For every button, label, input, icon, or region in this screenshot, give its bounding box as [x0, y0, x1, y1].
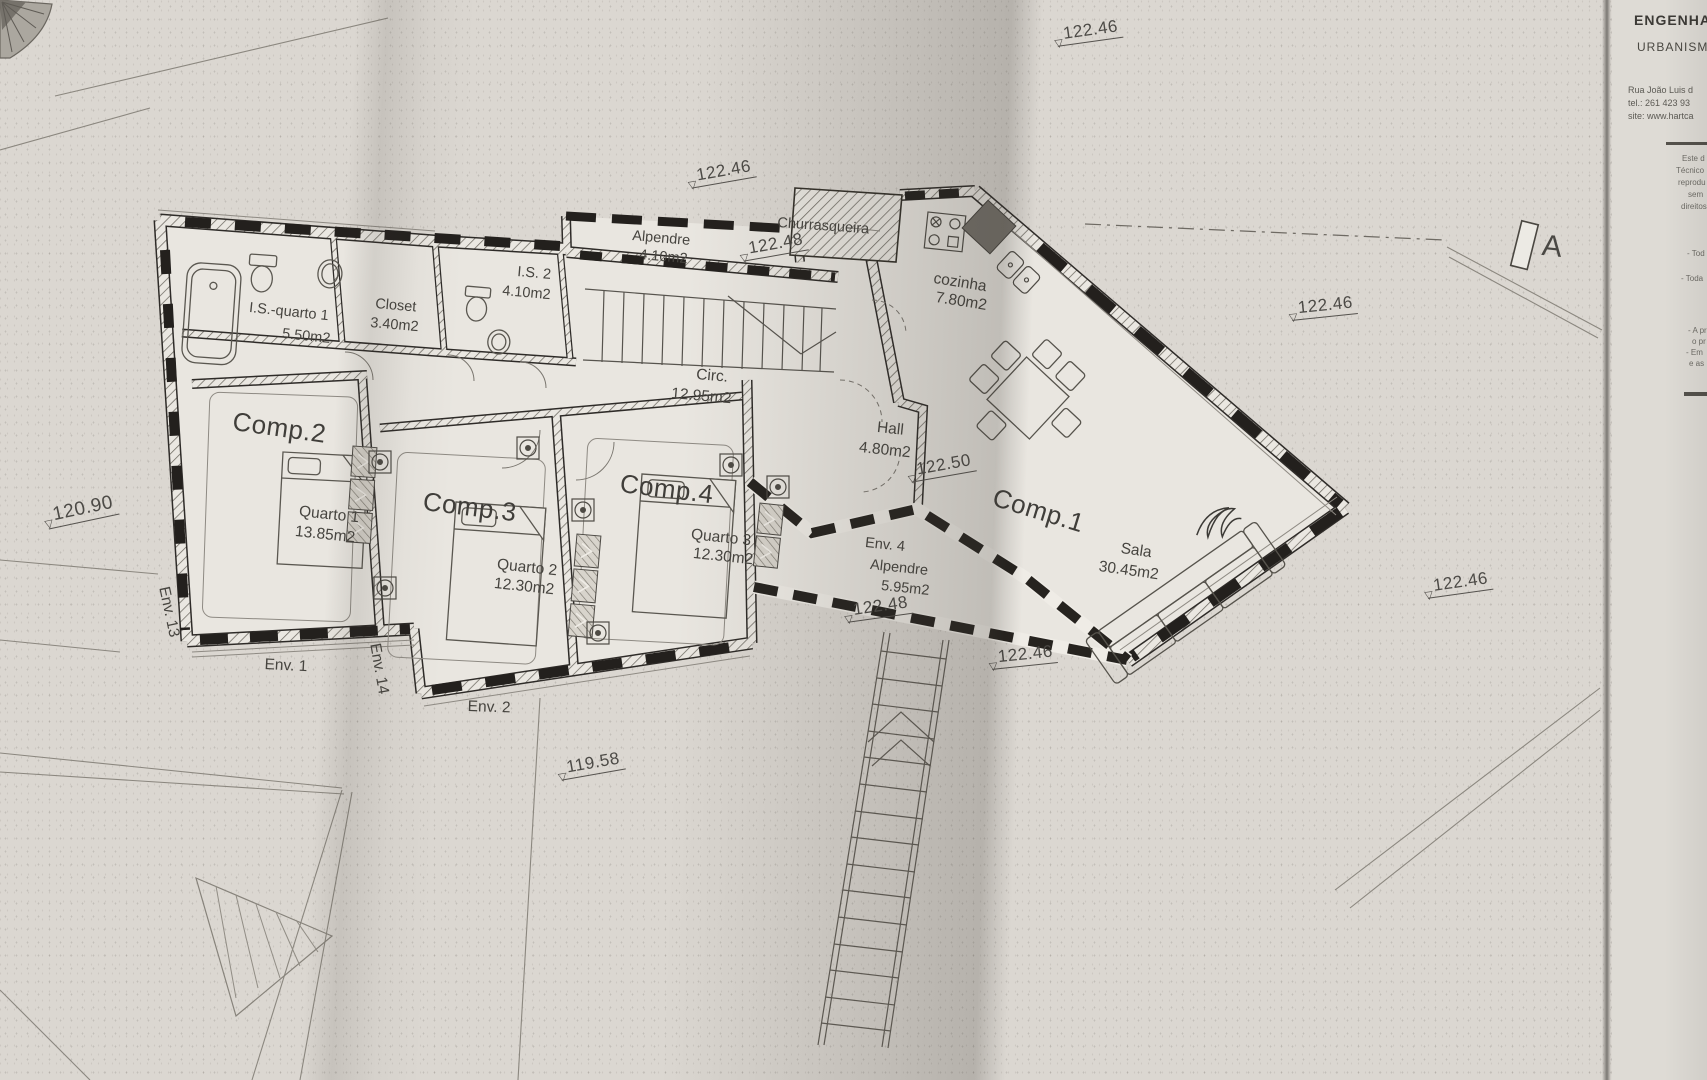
- elevation-triangle-icon: ▽: [739, 251, 750, 265]
- room-name-closet: Closet: [375, 296, 417, 316]
- title-block-note3: reprodu: [1678, 177, 1706, 189]
- section-cut-line: [1085, 224, 1445, 240]
- elevation-triangle-icon: ▽: [1288, 310, 1298, 324]
- title-block-note1: Este d: [1682, 153, 1705, 165]
- title-block-bullet3: - A pr: [1688, 325, 1707, 337]
- room-name-circ: Circ.: [695, 366, 728, 387]
- title-block-note2: Técnico: [1676, 165, 1704, 177]
- title-block-bullet5: - Em: [1686, 347, 1703, 359]
- page-fold-edge: [1602, 0, 1611, 1080]
- label-env2: Env. 2: [467, 698, 510, 717]
- title-block-address2: tel.: 261 423 93: [1628, 97, 1690, 110]
- title-block-address1: Rua João Luis d: [1628, 84, 1693, 97]
- title-block-line1: ENGENHARIA: [1634, 12, 1707, 28]
- floor-plan-drawing: [0, 0, 1707, 1080]
- floor-plan-photo: Comp.2 Comp.3 Comp.4 Comp.1 Quarto 1 13.…: [0, 0, 1707, 1080]
- title-block-divider-bottom: [1684, 392, 1707, 396]
- title-block-note4: sem: [1688, 189, 1703, 201]
- title-block-address3: site: www.hartca: [1628, 110, 1694, 123]
- title-block-bullet6: e as: [1689, 358, 1704, 370]
- elevation-triangle-icon: ▽: [907, 472, 918, 486]
- label-env1: Env. 1: [264, 656, 308, 676]
- title-block-bullet1: - Tod: [1687, 248, 1705, 260]
- outdoor-stairs: [818, 632, 949, 1048]
- title-block-bullet2: - Toda: [1681, 273, 1703, 285]
- elevation-triangle-icon: ▽: [844, 612, 855, 626]
- terrain-hatch-triangle: [196, 878, 332, 1016]
- title-block-note5: direitos: [1681, 201, 1707, 213]
- title-block-divider: [1666, 142, 1707, 145]
- room-name-hall: Hall: [876, 419, 904, 440]
- elevation-triangle-icon: ▽: [557, 770, 568, 784]
- elevation-triangle-icon: ▽: [1424, 588, 1435, 602]
- corner-fan: [0, 0, 52, 58]
- elevation-triangle-icon: ▽: [1054, 36, 1065, 50]
- elevation-triangle-icon: ▽: [988, 659, 998, 673]
- title-block-bullet4: o pr: [1692, 336, 1706, 348]
- title-block-line2: URBANISMO: [1637, 40, 1707, 54]
- section-marker-rect: [1511, 221, 1539, 270]
- elevation-triangle-icon: ▽: [687, 178, 698, 192]
- room-name-is2: I.S. 2: [517, 264, 552, 283]
- section-marker-letter: A: [1540, 229, 1563, 265]
